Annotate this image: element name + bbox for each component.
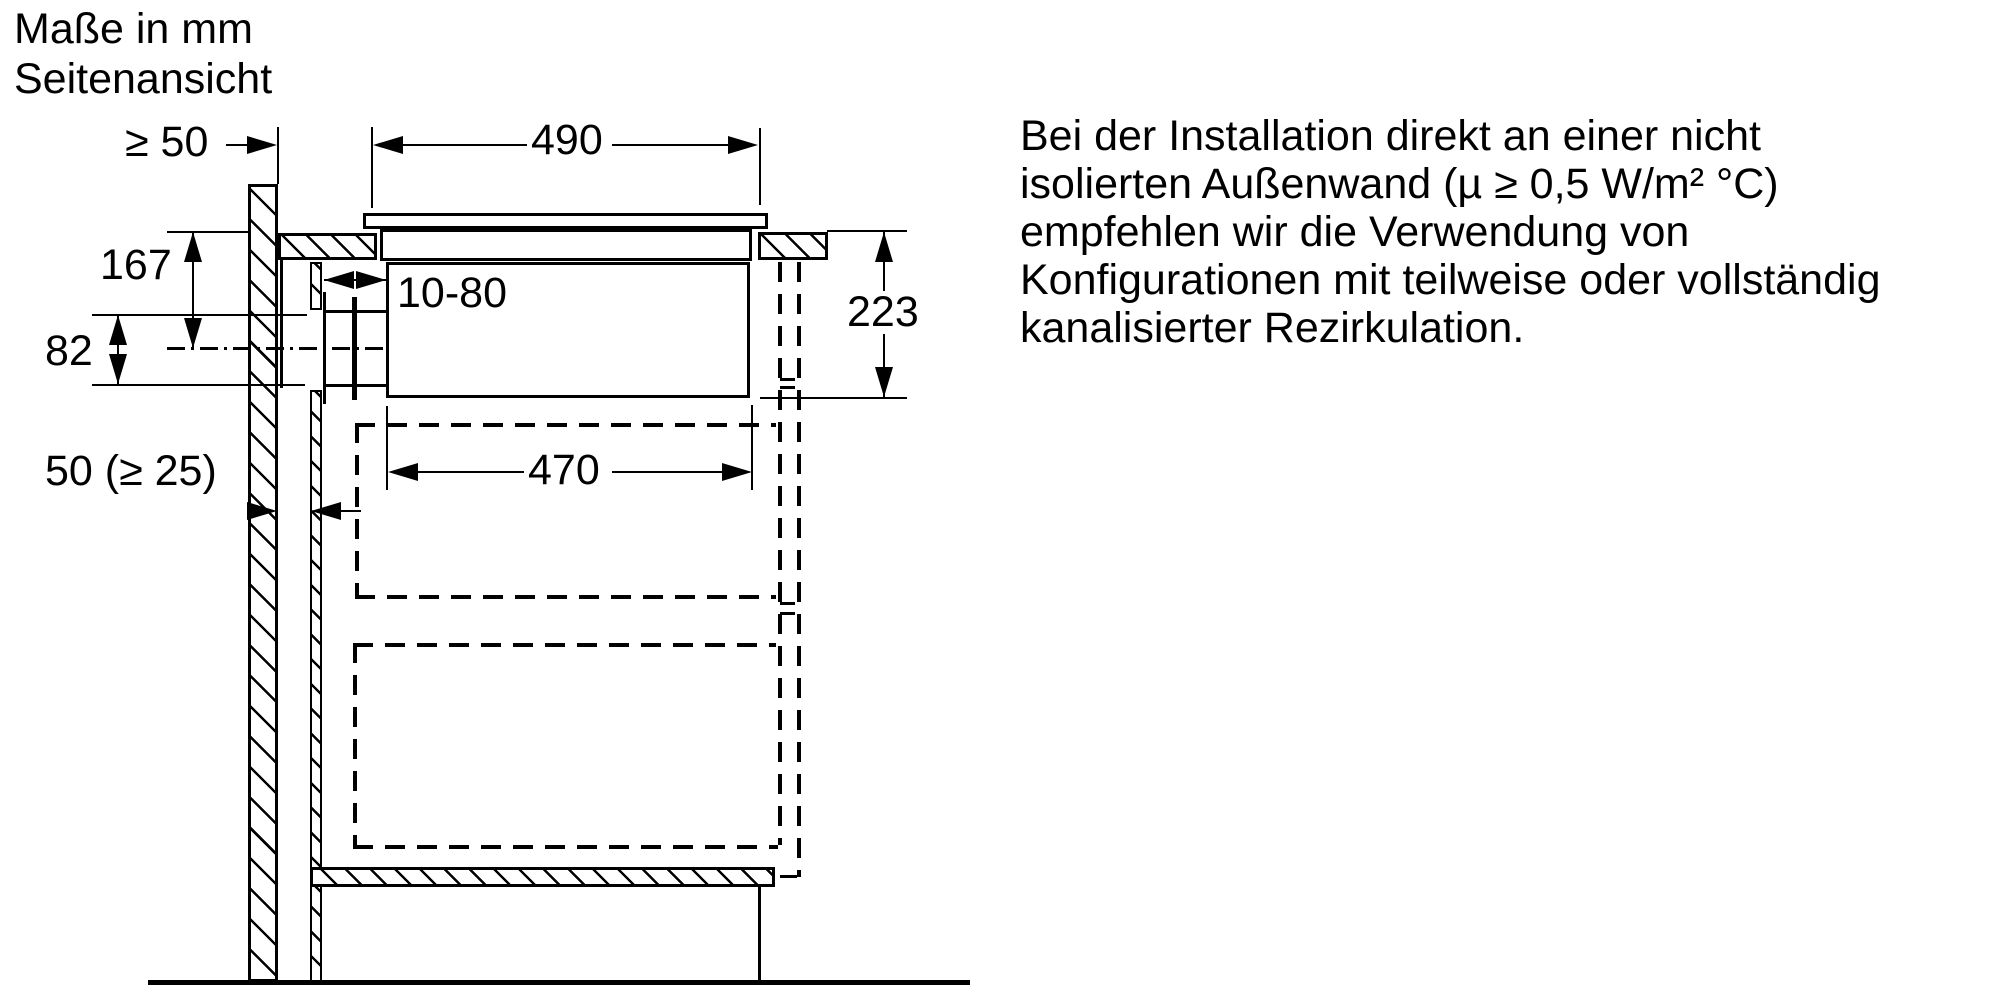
dim-470-line-left <box>415 471 525 473</box>
dim-wall-clearance-label: ≥ 50 <box>125 121 208 164</box>
dim-1080-label: 10-80 <box>397 272 507 315</box>
dim-167-label: 167 <box>100 244 172 287</box>
dim-490-arrowhead-right <box>728 136 758 154</box>
air-channel-rung <box>780 612 795 615</box>
air-channel-rung <box>780 386 795 389</box>
dim-82-arrowhead-up <box>109 315 127 345</box>
air-channel-rung <box>780 378 795 381</box>
cabinet-zone-a-top <box>355 423 776 427</box>
dim-wall-clearance-line <box>226 144 248 146</box>
dim-490-arrowhead-left <box>373 136 403 154</box>
dim-470-arrowhead-left <box>388 463 418 481</box>
dim-490-ext-right <box>759 128 761 205</box>
cabinet-bottom-panel <box>310 867 775 887</box>
hob-body <box>380 229 752 261</box>
dim-1080-arrowhead-right <box>356 271 386 289</box>
dim-223-arrowhead-down <box>875 367 893 397</box>
cabinet-zone-b-bottom <box>353 845 778 849</box>
note-line: kanalisierter Rezirkulation. <box>1020 304 1880 352</box>
dim-82-arrowhead-down <box>109 354 127 384</box>
installation-note: Bei der Installation direkt an einer nic… <box>1020 112 1880 352</box>
dim-490-line-left <box>400 144 528 146</box>
view-name: Seitenansicht <box>14 54 272 104</box>
dim-470-arrowhead-right <box>722 463 752 481</box>
dim-470-line-right <box>612 471 724 473</box>
dim-490-line-right <box>612 144 730 146</box>
cabinet-zone-a-bottom <box>355 595 776 599</box>
dim-223-ext-top <box>827 230 907 232</box>
dim-223-arrowhead-up <box>875 232 893 262</box>
air-channel-jog <box>780 875 797 878</box>
dim-rear-gap-arrowhead-right <box>311 502 341 520</box>
worktop-left <box>278 233 377 260</box>
dim-wall-clearance-extension <box>277 127 279 184</box>
dim-223-label: 223 <box>843 291 923 334</box>
dim-82-label: 82 <box>45 330 93 373</box>
air-channel-line-outer <box>797 262 801 877</box>
dim-167-arrowhead-up <box>184 232 202 262</box>
note-line: Konfigurationen mit teilweise oder volls… <box>1020 256 1880 304</box>
dim-rear-gap-tail <box>341 510 361 512</box>
dim-82-ext-bottom <box>92 384 305 386</box>
installation-diagram: Maße in mm Seitenansicht ≥ 50 <box>0 0 2000 1000</box>
floor-line <box>148 980 970 985</box>
note-line: Bei der Installation direkt an einer nic… <box>1020 112 1880 160</box>
dim-490-label: 490 <box>527 119 607 162</box>
note-line: isolierten Außenwand (µ ≥ 0,5 W/m² °C) <box>1020 160 1880 208</box>
dim-470-label: 470 <box>524 449 604 492</box>
dim-223-ext-bottom <box>760 397 907 399</box>
worktop-right <box>758 232 828 260</box>
outlet-spigot-top <box>326 310 386 313</box>
drawing-header: Maße in mm Seitenansicht <box>14 4 272 104</box>
hob-glass <box>363 213 768 229</box>
units-note: Maße in mm <box>14 4 272 54</box>
rear-batten-lower <box>310 390 322 982</box>
dim-167-ext-top <box>167 231 248 233</box>
rear-batten-upper <box>310 262 322 310</box>
dim-rear-gap-arrowhead-left <box>247 502 277 520</box>
dim-wall-clearance-arrowhead <box>247 136 277 154</box>
cabinet-zone-b-left <box>353 643 357 845</box>
plinth-front-line <box>758 887 761 982</box>
cabinet-zone-b-top <box>353 643 776 647</box>
rear-panel-line <box>280 260 283 388</box>
cabinet-zone-a-left <box>355 423 359 595</box>
dim-167-arrowhead-down <box>184 318 202 348</box>
outlet-spigot-bottom <box>326 384 386 387</box>
note-line: empfehlen wir die Verwendung von <box>1020 208 1880 256</box>
dim-1080-arrowhead-left <box>324 271 354 289</box>
air-channel-line-inner <box>778 262 782 845</box>
air-channel-rung <box>780 602 795 605</box>
dim-rear-gap-label: 50 (≥ 25) <box>45 450 217 493</box>
wall-section <box>248 184 278 982</box>
